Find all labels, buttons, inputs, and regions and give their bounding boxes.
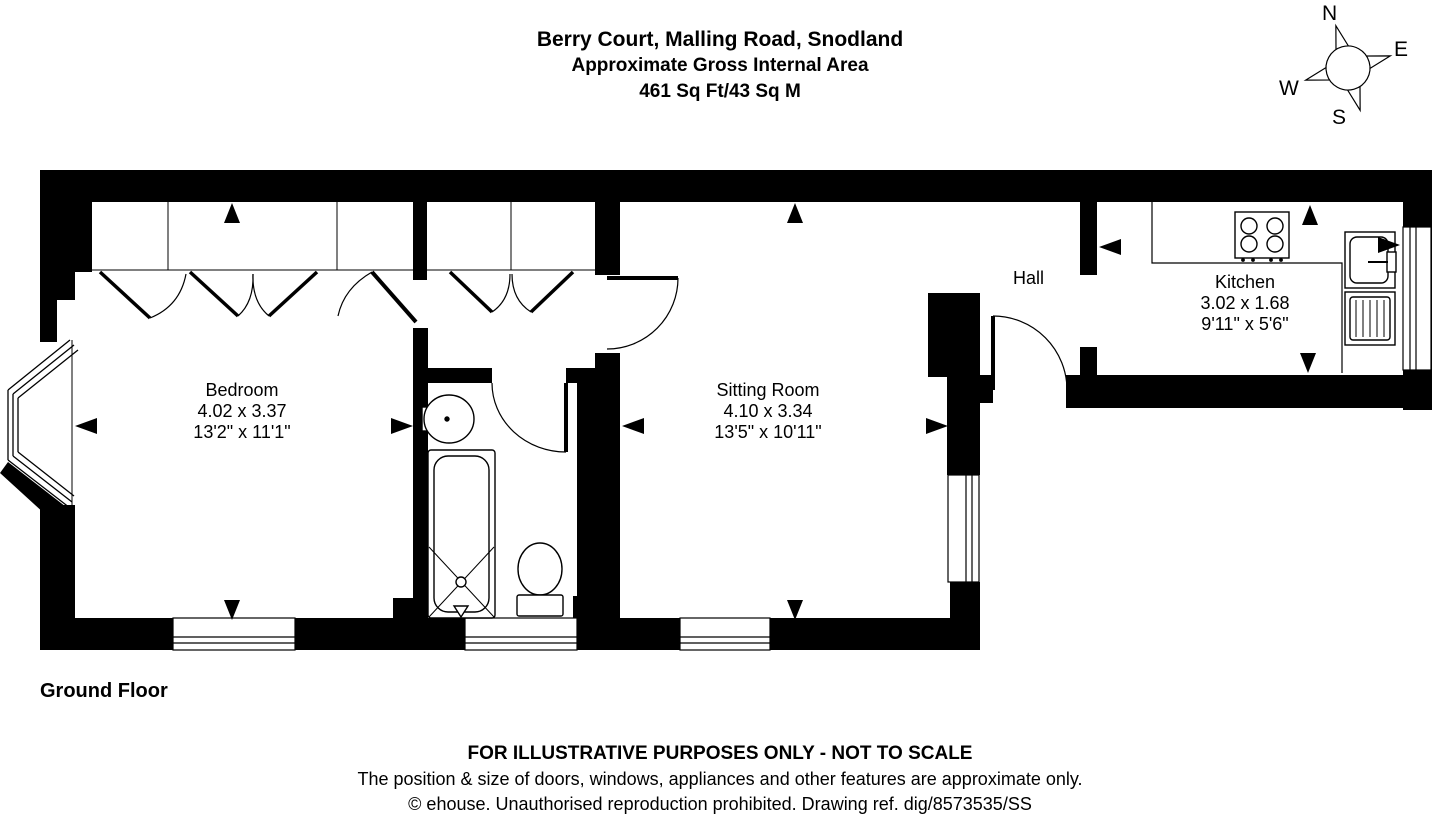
arrow-up xyxy=(224,203,240,223)
kitchen-window-right xyxy=(1403,227,1431,370)
arrow-down xyxy=(224,600,240,620)
hall-label: Hall xyxy=(1013,268,1044,289)
room-dims-metric: 3.02 x 1.68 xyxy=(1200,293,1289,314)
disclaimer-line1: FOR ILLUSTRATIVE PURPOSES ONLY - NOT TO … xyxy=(0,740,1440,767)
arrow-up xyxy=(1302,205,1318,225)
page-title: Berry Court, Malling Road, Snodland xyxy=(0,26,1440,53)
page-area: 461 Sq Ft/43 Sq M xyxy=(0,79,1440,105)
page-subtitle: Approximate Gross Internal Area xyxy=(0,53,1440,79)
plan-title-block: Berry Court, Malling Road, Snodland Appr… xyxy=(0,26,1440,105)
arrow-right xyxy=(391,418,413,434)
disclaimer-line2: The position & size of doors, windows, a… xyxy=(0,767,1440,792)
room-dims-metric: 4.10 x 3.34 xyxy=(714,401,821,422)
drainer-icon xyxy=(1345,292,1395,345)
compass-west-label: W xyxy=(1279,77,1299,101)
bathroom-window xyxy=(465,618,577,650)
room-dims-metric: 4.02 x 3.37 xyxy=(193,401,290,422)
arrow-right xyxy=(926,418,948,434)
bathroom-fixtures xyxy=(422,395,563,618)
floor-label: Ground Floor xyxy=(40,680,168,703)
sink-icon xyxy=(1345,232,1396,288)
sitting-room-window-bottom xyxy=(680,618,770,650)
arrow-down xyxy=(1300,353,1316,373)
compass-east-label: E xyxy=(1394,38,1408,62)
arrow-left xyxy=(75,418,97,434)
room-name: Sitting Room xyxy=(714,380,821,401)
room-name: Bedroom xyxy=(193,380,290,401)
hob-icon xyxy=(1235,212,1289,261)
disclaimer-block: FOR ILLUSTRATIVE PURPOSES ONLY - NOT TO … xyxy=(0,740,1440,817)
arrow-left xyxy=(622,418,644,434)
room-dims-imperial: 13'2" x 11'1" xyxy=(193,422,290,443)
bedroom-window xyxy=(173,618,295,650)
copyright-line: © ehouse. Unauthorised reproduction proh… xyxy=(0,792,1440,817)
hall-front-door xyxy=(993,316,1067,390)
bathroom-door xyxy=(492,383,566,452)
sitting-room-label: Sitting Room 4.10 x 3.34 13'5" x 10'11" xyxy=(714,380,821,443)
floorplan-page: Berry Court, Malling Road, Snodland Appr… xyxy=(0,0,1440,824)
arrow-up xyxy=(787,203,803,223)
toilet-icon xyxy=(517,543,563,616)
arrow-left xyxy=(1099,239,1121,255)
shower-bath-icon xyxy=(428,450,495,618)
compass-north-label: N xyxy=(1322,2,1337,26)
bedroom-label: Bedroom 4.02 x 3.37 13'2" x 11'1" xyxy=(193,380,290,443)
room-dims-imperial: 9'11" x 5'6" xyxy=(1200,314,1289,335)
sitting-room-door xyxy=(607,278,678,349)
sitting-room-window-right xyxy=(948,475,979,582)
arrow-down xyxy=(787,600,803,620)
kitchen-label: Kitchen 3.02 x 1.68 9'11" x 5'6" xyxy=(1200,272,1289,335)
room-dims-imperial: 13'5" x 10'11" xyxy=(714,422,821,443)
compass-south-label: S xyxy=(1332,106,1346,130)
room-name: Kitchen xyxy=(1200,272,1289,293)
bedroom-door xyxy=(338,272,416,322)
basin-icon xyxy=(422,395,474,443)
